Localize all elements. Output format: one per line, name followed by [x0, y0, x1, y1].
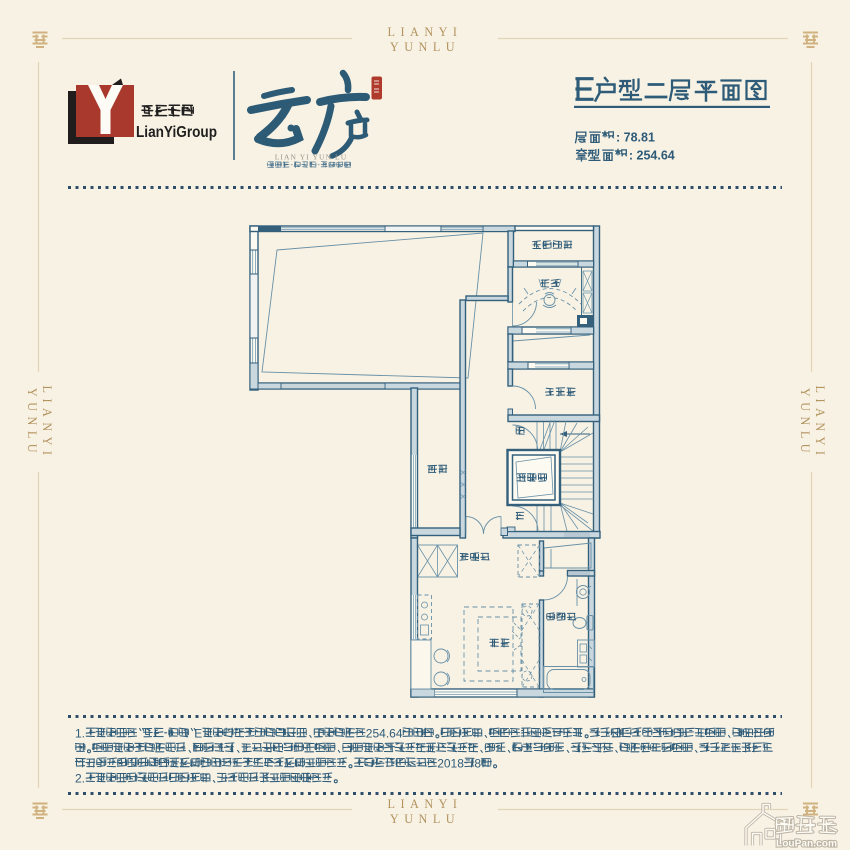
- svg-text:LianYiGroup: LianYiGroup: [136, 124, 217, 141]
- svg-text:E: E: [194, 727, 202, 741]
- svg-text:LIAN YI YUN LU: LIAN YI YUN LU: [275, 153, 348, 162]
- svg-text:8: 8: [474, 757, 481, 771]
- svg-text:: 78.81: : 78.81: [616, 131, 655, 145]
- svg-text:254.64: 254.64: [366, 727, 403, 741]
- svg-text:2.: 2.: [75, 772, 85, 786]
- svg-text:2018: 2018: [437, 757, 464, 771]
- svg-text:1.: 1.: [75, 727, 85, 741]
- svg-text:: 254.64: : 254.64: [629, 149, 675, 163]
- svg-text:LouPan.com: LouPan.com: [776, 838, 837, 850]
